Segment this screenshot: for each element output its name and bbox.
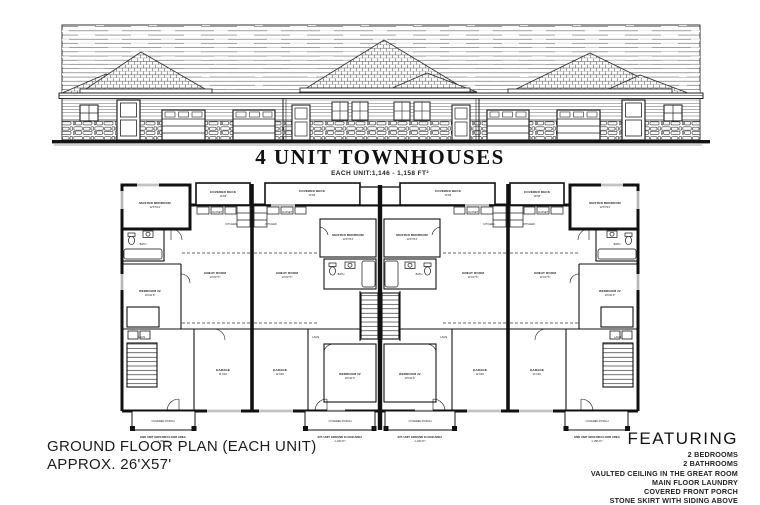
room-label-bath: BATH <box>416 272 423 276</box>
plan-note-line2: APPROX. 26'X57' <box>47 456 317 474</box>
room-label-garage: GARAGE <box>530 368 544 372</box>
featuring-item: 2 BATHROOMS <box>591 459 738 468</box>
lower-story <box>62 98 700 140</box>
architectural-sheet: 4 UNIT TOWNHOUSES EACH UNIT:1,146 - 1,15… <box>0 0 760 505</box>
room-label-bedroom2: BEDROOM #2 <box>399 372 421 376</box>
room-label-garage: GARAGE <box>473 368 487 372</box>
room-label-garage: GARAGE <box>273 368 287 372</box>
room-label-bath: BATH <box>338 272 345 276</box>
room-dim: 13'X17'6" <box>468 275 479 279</box>
floor-plan-drawing: COVERED DECK 10'X8' COVERED DECK 10'X8' … <box>119 179 641 447</box>
room-label-closet: CLOSET <box>212 210 223 214</box>
room-dim: 10'X11'6" <box>605 293 616 297</box>
room-label-great-room: GREAT ROOM <box>462 271 484 275</box>
room-label-porch: COVERED PORCH <box>409 419 432 423</box>
featuring-list: 2 BEDROOMS 2 BATHROOMS VAULTED CEILING I… <box>591 450 738 505</box>
room-label-closet: CLOSET <box>538 210 549 214</box>
room-label-laundry: LAUN. <box>138 335 146 339</box>
room-dim: 12'6"X13' <box>600 205 611 209</box>
room-dim: 13'X17'6" <box>540 275 551 279</box>
room-dim: 11'X20' <box>219 372 228 376</box>
room-label-garage: GARAGE <box>216 368 230 372</box>
plan-note: GROUND FLOOR PLAN (EACH UNIT) APPROX. 26… <box>47 438 317 474</box>
front-elevation-drawing <box>52 12 710 146</box>
featuring-item: MAIN FLOOR LAUNDRY <box>591 478 738 487</box>
room-label-master: MASTER BEDROOM <box>332 233 364 237</box>
room-label-deck: COVERED DECK <box>299 189 326 193</box>
room-dim: 10'X11'6" <box>405 376 416 380</box>
room-dim: 11'X20' <box>533 372 542 376</box>
room-label-deck: COVERED DECK <box>524 190 551 194</box>
room-label-laundry: LAUN. <box>614 335 622 339</box>
room-label-laundry: LAUN. <box>440 335 448 339</box>
room-label-deck: COVERED DECK <box>435 189 462 193</box>
room-label-great-room: GREAT ROOM <box>534 271 556 275</box>
drawing-title: 4 UNIT TOWNHOUSES <box>0 147 760 168</box>
unit-area-value: 1,146 FT² <box>414 439 425 443</box>
room-label-kitchen: KITCHEN <box>523 222 535 226</box>
featuring-heading: FEATURING <box>591 430 738 448</box>
room-label-laundry: LAUN. <box>312 335 320 339</box>
room-label-master: MASTER BEDROOM <box>396 233 428 237</box>
featuring-item: STONE SKIRT WITH SIDING ABOVE <box>591 496 738 505</box>
room-label-porch: COVERED PORCH <box>586 419 609 423</box>
room-label-bedroom2: BEDROOM #2 <box>139 289 161 293</box>
featuring-item: COVERED FRONT PORCH <box>591 487 738 496</box>
room-label-bedroom2: BEDROOM #2 <box>599 289 621 293</box>
stone-skirt <box>62 121 700 140</box>
featuring-section: FEATURING 2 BEDROOMS 2 BATHROOMS VAULTED… <box>591 430 738 505</box>
room-label-closet: CLOSET <box>282 210 293 214</box>
room-label-bedroom2: BEDROOM #2 <box>339 372 361 376</box>
room-dim: 11'X20' <box>476 372 485 376</box>
room-label-great-room: GREAT ROOM <box>276 271 298 275</box>
room-dim: 10'X11'6" <box>145 293 156 297</box>
unit-area-label: INT. UNIT GROUND FLOOR AREA <box>398 435 443 439</box>
room-label-great-room: GREAT ROOM <box>204 271 226 275</box>
featuring-item: VAULTED CEILING IN THE GREAT ROOM <box>591 469 738 478</box>
room-dim: 10'X8' <box>444 193 452 197</box>
plan-note-line1: GROUND FLOOR PLAN (EACH UNIT) <box>47 438 317 456</box>
unit-area-label: INT. UNIT GROUND FLOOR AREA <box>318 435 363 439</box>
unit-area-value: 1,146 FT² <box>334 439 345 443</box>
room-dim: 10'X8' <box>308 193 316 197</box>
room-label-porch: COVERED PORCH <box>329 419 352 423</box>
eave-fascia <box>59 93 703 99</box>
room-label-master: MASTER BEDROOM <box>139 201 171 205</box>
room-label-closet: CLOSET <box>468 210 479 214</box>
room-label-deck: COVERED DECK <box>210 190 237 194</box>
room-label-kitchen: KITCHEN <box>265 222 277 226</box>
room-label-kitchen: KITCHEN <box>225 222 237 226</box>
featuring-item: 2 BEDROOMS <box>591 450 738 459</box>
room-dim: 10'X11'6" <box>345 376 356 380</box>
room-dim: 12'6"X13' <box>407 237 418 241</box>
room-label-porch: COVERED PORCH <box>152 419 175 423</box>
room-dim: 11'X20' <box>276 372 285 376</box>
room-label-bath: BATH <box>140 242 147 246</box>
drawing-subtitle: EACH UNIT:1,146 - 1,158 FT² <box>0 170 760 177</box>
room-dim: 12'6"X13' <box>343 237 354 241</box>
room-label-kitchen: KITCHEN <box>483 222 495 226</box>
room-dim: 13'X17'6" <box>210 275 221 279</box>
room-label-bath: BATH <box>614 242 621 246</box>
room-label-master: MASTER BEDROOM <box>589 201 621 205</box>
room-dim: 10'X8' <box>219 194 227 198</box>
room-dim: 10'X8' <box>533 194 541 198</box>
room-dim: 13'X17'6" <box>282 275 293 279</box>
room-dim: 12'6"X13' <box>150 205 161 209</box>
